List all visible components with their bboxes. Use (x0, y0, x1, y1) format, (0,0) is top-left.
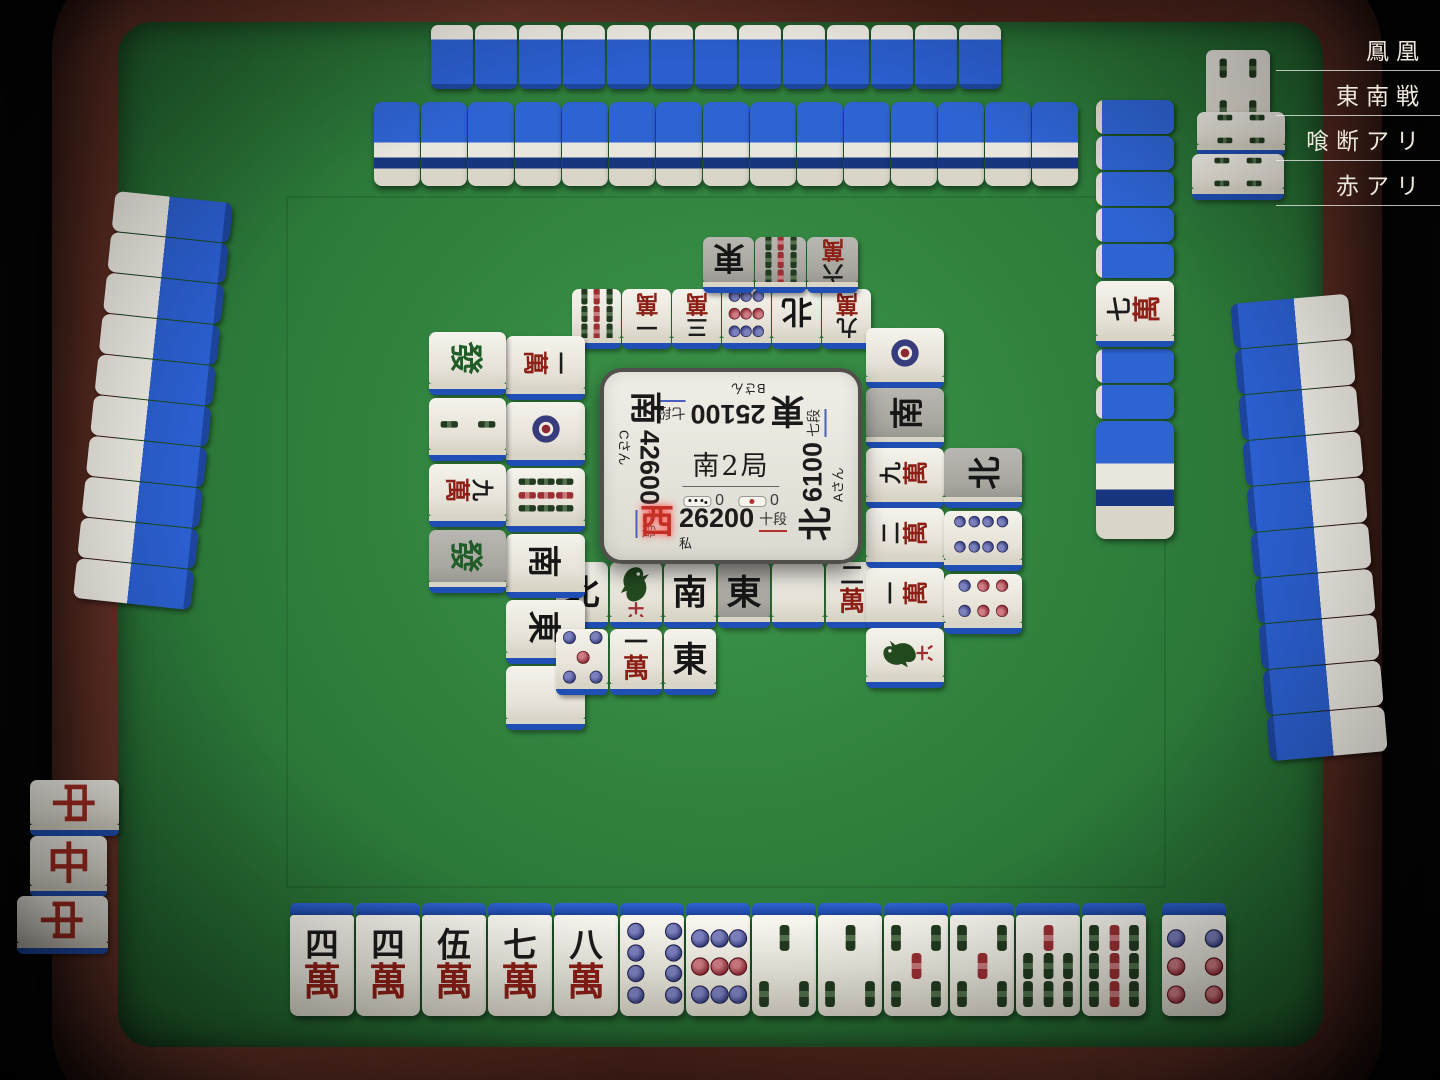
tile-E: 東 (703, 237, 754, 293)
player-info-right: 北 6100 七段 Aさん (800, 391, 847, 541)
tile-m2: 二萬 (866, 508, 944, 568)
hand-tile-s3[interactable] (752, 903, 816, 1016)
dead-wall: 七萬 (1096, 100, 1174, 539)
tile-glyph-wind: 南 (515, 540, 575, 580)
meld-chun-pon-tile: 中 (30, 780, 119, 836)
wall-top (374, 102, 1078, 186)
rank-bottom: 十段 (759, 509, 787, 532)
tile-back (519, 25, 561, 89)
player-info-top: 東 25100 七段 Bさん (657, 380, 804, 427)
tile-s9 (755, 237, 806, 293)
hand-tile-s9[interactable] (1082, 903, 1146, 1016)
tile-back (695, 25, 737, 89)
tile-back (959, 25, 1001, 89)
hand-tile-s7[interactable] (1016, 903, 1080, 1016)
tile-s2 (429, 398, 506, 461)
tile-glyph-chun: 中 (42, 836, 95, 886)
tile-glyph-man: 九萬 (827, 289, 865, 338)
tile-S: 南 (866, 388, 944, 448)
tile-back (562, 102, 608, 186)
hand-tile-p8[interactable] (620, 903, 684, 1016)
meld-chun-pon-tile: 中 (30, 836, 107, 897)
rule-label-2: 喰断アリ (1276, 116, 1440, 161)
tile-m1: 一萬 (866, 568, 944, 628)
hand-tile-p9[interactable] (686, 903, 750, 1016)
tile-m1: 一萬 (506, 336, 585, 400)
name-top: Bさん (657, 380, 765, 399)
tile-back (1096, 172, 1174, 206)
tile-back (797, 102, 843, 186)
tile-back (1096, 136, 1174, 170)
tile-glyph-man: 七萬 (1101, 286, 1168, 331)
tile-N: 北 (772, 289, 821, 349)
tile-glyph-wind: 東 (723, 562, 766, 617)
tile-s1 (866, 628, 944, 688)
score-right: 6100 (800, 442, 827, 502)
tile-back (739, 25, 781, 89)
tile-glyph-hatsu: 發 (437, 338, 497, 378)
tile-back (1096, 421, 1174, 539)
tile-back (563, 25, 605, 89)
tile-m1: 一萬 (622, 289, 671, 349)
tile-m6: 六萬 (807, 237, 858, 293)
tile-s9 (506, 468, 585, 532)
tile-back (609, 102, 655, 186)
tile-p1 (866, 328, 944, 388)
tile-glyph-man: 一萬 (627, 289, 665, 338)
tile-back (783, 25, 825, 89)
drawn-tile-p6[interactable] (1162, 903, 1226, 1016)
hand-tile-m4[interactable]: 四萬 (290, 903, 354, 1016)
tile-back (703, 102, 749, 186)
hundred-stick-icon (683, 496, 711, 507)
meld-4sou-pon-tile (1192, 154, 1284, 200)
tile-back (915, 25, 957, 89)
tile-back (871, 25, 913, 89)
hand-tile-m5[interactable]: 伍萬 (422, 903, 486, 1016)
tile-glyph-man: 七萬 (490, 920, 550, 1011)
tile-glyph-man: 一萬 (515, 342, 575, 382)
hand-tile-m8[interactable]: 八萬 (554, 903, 618, 1016)
tile-m9: 九萬 (822, 289, 871, 349)
tile-back (750, 102, 796, 186)
tile-back (651, 25, 693, 89)
tile-glyph-man: 九萬 (875, 452, 935, 492)
tile-back (1096, 244, 1174, 278)
tile-glyph-wind: 北 (953, 452, 1013, 492)
tile-p5 (556, 629, 608, 695)
tile-glyph-pin (891, 339, 918, 366)
tile-m9: 九萬 (429, 464, 506, 527)
tile-back (844, 102, 890, 186)
rank-right: 七段 (804, 409, 827, 437)
tile-glyph-wind: 東 (709, 237, 747, 282)
tile-glyph-man: 九萬 (437, 470, 497, 510)
round-indicator: 南2局 0 0 (682, 444, 779, 510)
hand-tile-s3[interactable] (818, 903, 882, 1016)
riichi-stick-counter: 0 (738, 492, 779, 510)
tile-back (1096, 208, 1174, 242)
tile-glyph-man: 伍萬 (424, 920, 484, 1011)
tile-p9 (722, 289, 771, 349)
tile-S: 南 (664, 562, 716, 628)
tile-glyph-hatsu: 發 (437, 536, 497, 576)
tile-E: 東 (664, 629, 716, 695)
seat-wind-left: 南 (629, 391, 663, 425)
game-table: 七萬 北南東二萬一萬東一萬三萬北九萬東六萬一萬南東發九萬發南九萬二萬一萬北 中中… (0, 0, 1440, 1080)
name-bottom: 私 (679, 533, 787, 552)
tile-back (938, 102, 984, 186)
opponent-top-hand (431, 25, 1001, 89)
tile-hatsu: 發 (429, 332, 506, 395)
tile-haku (772, 562, 824, 628)
hand-tile-m7[interactable]: 七萬 (488, 903, 552, 1016)
tile-glyph-wind: 北 (777, 289, 815, 338)
tile-glyph-man: 八萬 (556, 920, 616, 1011)
one-sou-bird-icon (875, 632, 935, 672)
hand-tile-s5[interactable] (950, 903, 1014, 1016)
one-sou-bird-icon (615, 562, 658, 617)
tile-glyph-man: 二萬 (875, 512, 935, 552)
rules-panel: 鳳凰東南戦喰断アリ赤アリ (1276, 26, 1440, 206)
dora-indicator-tile: 七萬 (1096, 281, 1174, 347)
tile-p6 (944, 574, 1022, 634)
rule-label-3: 赤アリ (1276, 161, 1440, 206)
tile-back (1032, 102, 1078, 186)
meld-chun-pon-tile: 中 (17, 896, 108, 954)
tile-glyph-chun: 中 (35, 780, 115, 825)
rule-label-0: 鳳凰 (1276, 26, 1440, 71)
name-right: Aさん (828, 409, 847, 502)
tile-back (891, 102, 937, 186)
hand-tile-s5[interactable] (884, 903, 948, 1016)
tile-S: 南 (506, 534, 585, 598)
score-left: 42600 (636, 430, 663, 505)
tile-back (431, 25, 473, 89)
player-info-bottom: 西 26200 十段 私 (640, 505, 787, 552)
tile-glyph-man: 四萬 (292, 920, 352, 1011)
seat-wind-right: 北 (800, 507, 834, 541)
rule-label-1: 東南戦 (1276, 71, 1440, 116)
tile-m9: 九萬 (866, 448, 944, 508)
hand-tile-m4[interactable]: 四萬 (356, 903, 420, 1016)
tile-glyph-chun: 中 (23, 896, 103, 943)
tile-m3: 三萬 (672, 289, 721, 349)
tile-E: 東 (718, 562, 770, 628)
tile-glyph-pin (532, 415, 559, 442)
tile-back (1096, 385, 1174, 419)
round-name: 南2局 (682, 444, 779, 487)
tile-s1 (610, 562, 662, 628)
tile-back (515, 102, 561, 186)
tile-p1 (506, 402, 585, 466)
thousand-stick-icon (738, 496, 766, 507)
tile-back (421, 102, 467, 186)
center-score-panel: 東 25100 七段 Bさん 南 42600 七段 Cさん 北 (600, 368, 862, 564)
seat-wind-bottom: 西 (640, 505, 674, 539)
tile-back (475, 25, 517, 89)
tile-glyph-wind: 南 (669, 562, 712, 617)
tile-back (656, 102, 702, 186)
name-left: Cさん (616, 430, 635, 538)
tile-glyph-wind: 南 (875, 392, 935, 432)
honba-counter: 0 (683, 492, 724, 510)
tile-back (374, 102, 420, 186)
tile-back (468, 102, 514, 186)
tile-glyph-man: 四萬 (358, 920, 418, 1011)
tile-hatsu: 發 (429, 530, 506, 593)
tile-glyph-man: 一萬 (875, 572, 935, 612)
tile-glyph-wind: 東 (669, 629, 712, 684)
meld-4sou-pon-tile (1197, 112, 1285, 156)
tile-glyph-man: 三萬 (677, 289, 715, 338)
tile-back (1096, 100, 1174, 134)
tile-back (985, 102, 1031, 186)
tile-p8 (944, 511, 1022, 571)
tile-glyph-man: 六萬 (813, 237, 851, 282)
tile-back (1096, 349, 1174, 383)
tile-N: 北 (944, 448, 1022, 508)
tile-back (827, 25, 869, 89)
score-top: 25100 (690, 400, 765, 427)
tile-glyph-man: 一萬 (615, 629, 658, 684)
tile-m1: 一萬 (610, 629, 662, 695)
tile-back (607, 25, 649, 89)
